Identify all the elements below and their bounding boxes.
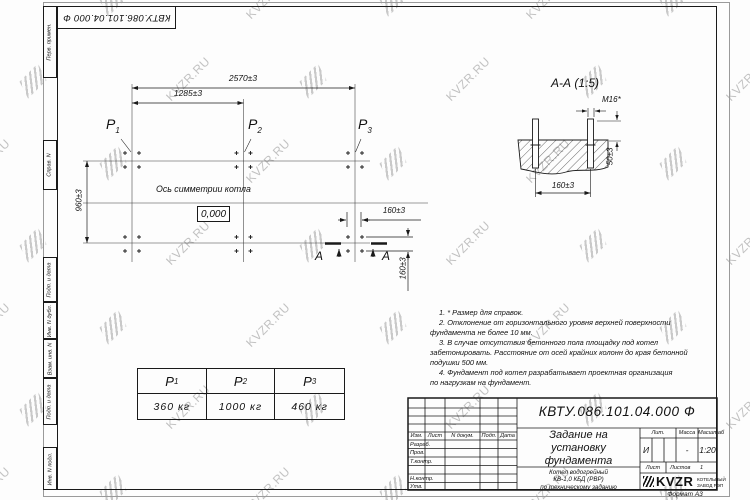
brand-sub-1: КОТЕЛЬНЫЙ <box>697 477 726 482</box>
axis-of-symmetry-label: Ось симметрии котла <box>156 185 251 195</box>
kvzr-emblem-icon <box>643 476 654 487</box>
load-value-p1: 360 кг <box>138 394 207 419</box>
corner-doc-number: КВТУ.086.101.04.000 Ф <box>57 6 176 29</box>
title-line-2: установку <box>517 442 640 454</box>
thread-label: M16* <box>602 96 621 105</box>
p2-head-sub: 2 <box>243 377 247 386</box>
load-point-p1: P1 <box>106 117 120 136</box>
watermark-text: KVZR.RU <box>0 300 13 350</box>
rev-col-izm: Изм. <box>408 433 425 439</box>
load-value-p3: 460 кг <box>275 394 344 419</box>
p3-head-sub: 3 <box>312 377 316 386</box>
dim-half: 1285±3 <box>148 89 228 98</box>
p1-head: P <box>165 374 174 389</box>
brand-sub-2: ЗАВОД РЭП <box>697 483 723 488</box>
p3-head: P <box>303 374 312 389</box>
note-line: фундамента не более 10 мм. <box>430 328 718 337</box>
note-line: подушки 500 мм. <box>430 358 718 367</box>
p3-base: P <box>358 116 367 132</box>
p2-head: P <box>234 374 243 389</box>
dim-bolt-y: 160±3 <box>400 246 409 290</box>
load-table-header-p3: P3 <box>275 369 344 394</box>
dim-bolt-spacing: 160±3 <box>541 182 585 191</box>
sign-row-prov: Пров. <box>410 450 425 456</box>
level-mark: 0,000 <box>197 206 230 222</box>
mass-value: - <box>676 445 698 455</box>
p1-head-sub: 1 <box>174 377 178 386</box>
margin-label: Перв. примен. <box>47 23 53 60</box>
note-line: 2. Отклонение от горизонтального уровня … <box>430 318 727 327</box>
margin-label: Инв. N дубл. <box>47 304 53 336</box>
section-title: А-А (1:5) <box>535 77 615 90</box>
corner-doc-number-text: КВТУ.086.101.04.000 Ф <box>63 12 171 23</box>
watermark-text: KVZR.RU <box>0 136 13 186</box>
margin-label: Инв. N подл. <box>47 452 53 485</box>
margin-box-inv-podl: Инв. N подл. <box>43 447 57 490</box>
sign-row-nkontr: Н.контр. <box>410 476 434 482</box>
drawing-sheet: KVZR.RUKVZR.RUKVZR.RUKVZR.RUKVZR.RUKVZR.… <box>0 0 750 500</box>
scale-value: 1:20 <box>698 445 717 455</box>
margin-box-inv-dubl: Инв. N дубл. <box>43 302 57 339</box>
watermark-text: KVZR.RU <box>0 0 13 22</box>
section-letter-right: A <box>382 250 390 263</box>
p2-base: P <box>248 116 257 132</box>
margin-box-perv-primen: Перв. примен. <box>43 6 57 78</box>
subtitle-line-2: КВ-1,0 КБД (РВР) <box>517 476 640 483</box>
p1-sub: 1 <box>115 126 119 135</box>
load-table-header-p2: P2 <box>207 369 276 394</box>
lit-header: Лит. <box>640 430 676 436</box>
title-line-1: Задание на <box>517 429 640 441</box>
subtitle-line-3: по техническому заданию <box>517 484 640 491</box>
subtitle-line-1: Котел водогрейный <box>517 469 640 476</box>
margin-label: Подп. и дата <box>47 384 53 419</box>
dim-depth: 960±3 <box>76 178 85 222</box>
scale-header: Масштаб <box>698 430 717 436</box>
margin-box-podp-data-2: Подп. и дата <box>43 378 57 425</box>
sign-row-utv: Утв. <box>410 484 423 490</box>
p1-base: P <box>106 116 115 132</box>
note-line: 3. В случае отсутствия бетонного пола пл… <box>430 338 727 347</box>
rev-col-list: Лист <box>425 433 445 439</box>
title-line-3: фундамента <box>517 455 640 467</box>
p3-sub: 3 <box>367 126 371 135</box>
margin-box-sprav-n: Справ. N <box>43 140 57 190</box>
section-letter-left: A <box>315 250 323 263</box>
load-table: P1 P2 P3 360 кг 1000 кг 460 кг <box>137 368 345 420</box>
dim-total: 2570±3 <box>203 74 283 83</box>
rev-col-data: Дата <box>498 433 517 439</box>
note-line: 1. * Размер для справок. <box>430 308 727 317</box>
margin-label: Справ. N <box>47 153 53 176</box>
title-block-doc-number: КВТУ.086.101.04.000 Ф <box>519 404 715 419</box>
margin-label: Взам. инв. N <box>47 342 53 375</box>
margin-box-podp-data-1: Подп. и дата <box>43 257 57 302</box>
mass-header: Масса <box>676 430 698 436</box>
load-point-p3: P3 <box>358 117 372 136</box>
load-value-p2: 1000 кг <box>207 394 276 419</box>
sheets-label: Листов <box>670 465 690 471</box>
p2-sub: 2 <box>257 126 261 135</box>
format-label: Формат А3 <box>645 491 725 498</box>
note-line: 4. Фундамент под котел разрабатывает про… <box>430 368 727 377</box>
brand-logo-text: KVZR <box>656 474 693 489</box>
rev-col-ndokum: N докум. <box>445 433 480 439</box>
dim-bolt-x: 160±3 <box>372 207 416 216</box>
note-line: забетонировать. Расстояние от осей крайн… <box>430 348 718 357</box>
margin-label: Подп. и дата <box>47 262 53 297</box>
rev-col-podp: Подп. <box>480 433 498 439</box>
sheet-label: Лист <box>640 465 666 471</box>
margin-box-vzam-inv: Взам. инв. N <box>43 339 57 378</box>
dim-protrusion: 50±3 <box>607 134 616 178</box>
note-line: по нагрузкам на фундамент. <box>430 378 718 387</box>
sheets-value: 1 <box>700 465 703 471</box>
sign-row-razrab: Разраб. <box>410 442 430 448</box>
watermark-text: KVZR.RU <box>0 464 13 500</box>
sign-row-tkontr: Т.контр. <box>410 459 433 465</box>
lit-value: И <box>640 445 652 455</box>
load-table-header-p1: P1 <box>138 369 207 394</box>
load-point-p2: P2 <box>248 117 262 136</box>
